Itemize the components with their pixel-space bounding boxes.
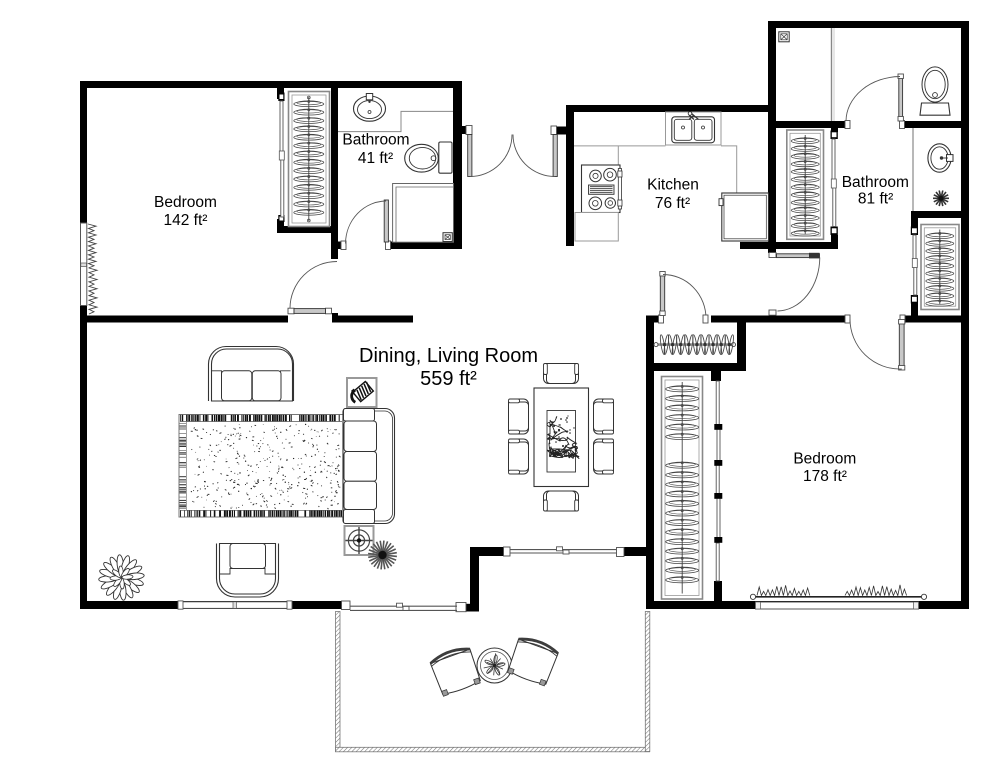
svg-text:559 ft²: 559 ft² xyxy=(420,368,477,390)
svg-text:Bedroom: Bedroom xyxy=(793,451,856,468)
svg-text:41 ft²: 41 ft² xyxy=(358,150,393,167)
svg-text:Bathroom: Bathroom xyxy=(342,132,409,149)
svg-text:81 ft²: 81 ft² xyxy=(858,191,893,208)
svg-text:Bedroom: Bedroom xyxy=(154,194,217,211)
svg-text:178 ft²: 178 ft² xyxy=(803,468,847,485)
svg-text:Kitchen: Kitchen xyxy=(647,177,699,194)
svg-text:Bathroom: Bathroom xyxy=(842,174,909,191)
svg-text:Dining, Living Room: Dining, Living Room xyxy=(359,345,538,367)
svg-text:76 ft²: 76 ft² xyxy=(655,195,690,212)
svg-text:142 ft²: 142 ft² xyxy=(164,212,208,229)
